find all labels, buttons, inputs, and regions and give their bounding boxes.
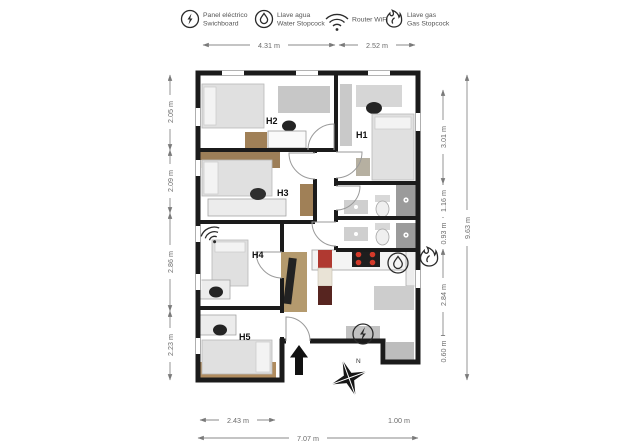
switchboard-icon bbox=[182, 11, 199, 28]
pillow bbox=[375, 117, 411, 129]
dim-bottom-total: 7.07 m bbox=[297, 434, 319, 443]
gas-stopcock-icon bbox=[387, 10, 402, 27]
window bbox=[195, 226, 202, 242]
room-label-h3: H3 bbox=[277, 188, 289, 198]
floorplan-page: Panel eléctrico Swichboard Llave agua Wa… bbox=[0, 0, 633, 448]
dim-bottom-2: 1.00 m bbox=[388, 416, 410, 425]
dim-right-4: 2.84 m bbox=[439, 284, 448, 306]
legend-water-line2: Water Stopcock bbox=[277, 21, 325, 28]
small-desk bbox=[268, 131, 306, 148]
dim-right-5: 0.60 m bbox=[439, 341, 448, 363]
water-stopcock-icon bbox=[256, 11, 273, 28]
desk bbox=[208, 199, 286, 216]
desk bbox=[278, 86, 330, 113]
stove-burner bbox=[356, 252, 362, 258]
room-label-h1: H1 bbox=[356, 130, 368, 140]
gas-stopcock-marker bbox=[421, 247, 438, 266]
chair bbox=[209, 287, 223, 298]
legend-wifi-line1: Router WiFi bbox=[352, 17, 388, 24]
room-label-h5: H5 bbox=[239, 332, 251, 342]
chair bbox=[366, 102, 382, 114]
compass-north-label: N bbox=[356, 358, 361, 365]
legend-switchboard-line2: Swichboard bbox=[203, 21, 239, 28]
wardrobe bbox=[340, 84, 352, 146]
dim-left-3: 2.86 m bbox=[166, 251, 175, 273]
pillow bbox=[204, 162, 218, 194]
stove-burner bbox=[370, 260, 376, 266]
window bbox=[368, 70, 390, 77]
dim-left-1: 2.05 m bbox=[166, 101, 175, 123]
toilet bbox=[376, 201, 389, 217]
dresser bbox=[245, 132, 267, 148]
compass-rose: N bbox=[325, 354, 374, 403]
doormat bbox=[386, 342, 414, 361]
stove-burner bbox=[370, 252, 376, 258]
room-label-h4: H4 bbox=[252, 250, 264, 260]
window bbox=[195, 108, 202, 126]
dim-right-total: 9.63 m bbox=[463, 217, 472, 239]
window bbox=[296, 70, 318, 77]
window bbox=[195, 160, 202, 176]
nightstand bbox=[356, 158, 370, 176]
window bbox=[415, 270, 422, 288]
wifi-icon bbox=[326, 14, 348, 30]
pillow bbox=[256, 342, 270, 372]
legend-switchboard-line1: Panel eléctrico bbox=[203, 12, 248, 19]
room-label-h2: H2 bbox=[266, 116, 278, 126]
pillow bbox=[215, 242, 245, 252]
dim-right-1: 3.01 m bbox=[439, 126, 448, 148]
stove bbox=[352, 250, 380, 267]
chair bbox=[213, 325, 227, 336]
legend-water-line1: Llave agua bbox=[277, 12, 310, 19]
legend-gas-line2: Gas Stopcock bbox=[407, 21, 450, 28]
chair bbox=[282, 121, 296, 132]
window bbox=[195, 338, 202, 354]
legend: Panel eléctrico Swichboard Llave agua Wa… bbox=[182, 10, 450, 31]
window bbox=[195, 274, 202, 290]
window bbox=[222, 70, 244, 77]
dim-bottom-1: 2.43 m bbox=[227, 416, 249, 425]
dim-right-2: 1.16 m bbox=[439, 190, 448, 212]
dim-top-1: 4.31 m bbox=[258, 41, 280, 50]
pillow bbox=[204, 87, 216, 125]
closet bbox=[300, 184, 315, 216]
dim-left-2: 2.09 m bbox=[166, 170, 175, 192]
entrance-arrow-marker bbox=[290, 345, 308, 375]
dim-right-3: 0.93 m bbox=[439, 223, 448, 245]
toilet bbox=[376, 229, 389, 245]
window bbox=[415, 113, 422, 131]
dim-left-4: 2.23 m bbox=[166, 334, 175, 356]
floorplan-canvas: Panel eléctrico Swichboard Llave agua Wa… bbox=[0, 0, 633, 448]
floor-plan: N H2 H1 H3 H4 H5 bbox=[195, 70, 438, 403]
stove-burner bbox=[356, 260, 362, 266]
chair bbox=[250, 188, 266, 200]
legend-gas-line1: Llave gas bbox=[407, 12, 437, 19]
shelf-cream bbox=[318, 268, 332, 286]
living-rug bbox=[374, 286, 414, 310]
shelf-red bbox=[318, 250, 332, 268]
shelf-maroon bbox=[318, 286, 332, 305]
dim-top-2: 2.52 m bbox=[366, 41, 388, 50]
